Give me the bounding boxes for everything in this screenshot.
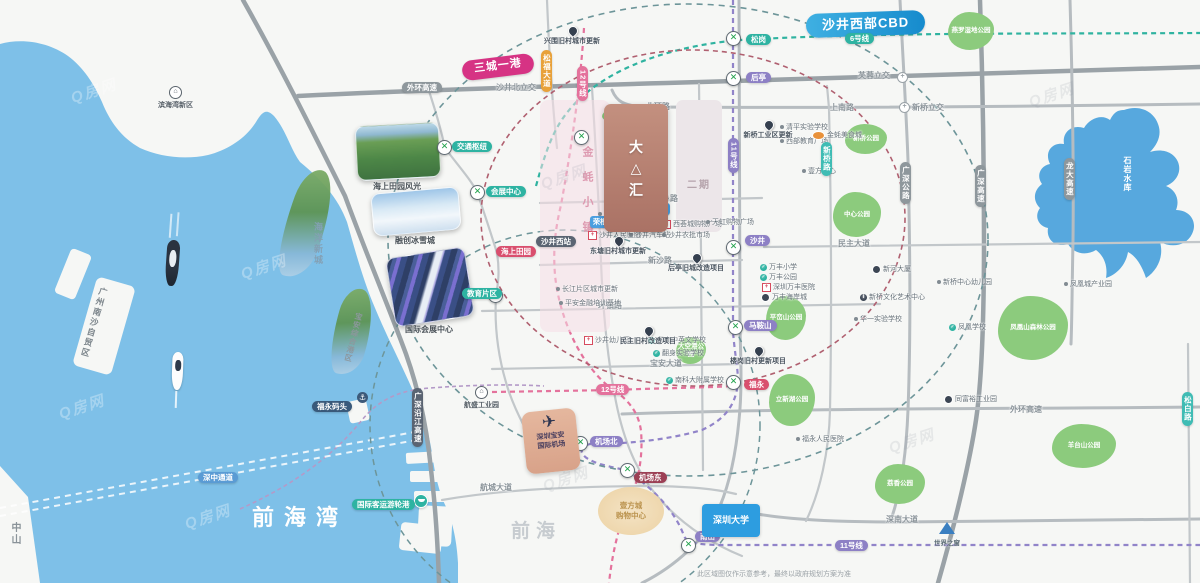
map-canvas: 大 △ 汇 二期 ✈ 深圳宝安 国际机场 深圳大学 壹方城 购物中心 海上田园风… (0, 0, 1200, 583)
disclaimer-text: 此区域图仅作示意参考，最终以政府规划方案为准 (697, 569, 851, 579)
phase2-label: 二期 (676, 176, 722, 191)
mall-name-line2: 购物中心 (598, 511, 664, 521)
project-logo-char: 大 (629, 137, 643, 157)
mall-name-line1: 壹方城 (598, 501, 664, 511)
airport-block: ✈ 深圳宝安 国际机场 (521, 407, 581, 474)
project-main-block: 大 △ 汇 (604, 104, 668, 232)
university-block: 深圳大学 (702, 504, 760, 537)
project-phase2-block: 二期 (676, 100, 722, 232)
golden-oyster-town-zone (540, 100, 610, 332)
reservoir-water (1035, 108, 1194, 278)
mall-blob: 壹方城 购物中心 (598, 487, 664, 535)
project-logo-char: △ (631, 160, 642, 177)
project-logo-char: 汇 (629, 180, 643, 200)
